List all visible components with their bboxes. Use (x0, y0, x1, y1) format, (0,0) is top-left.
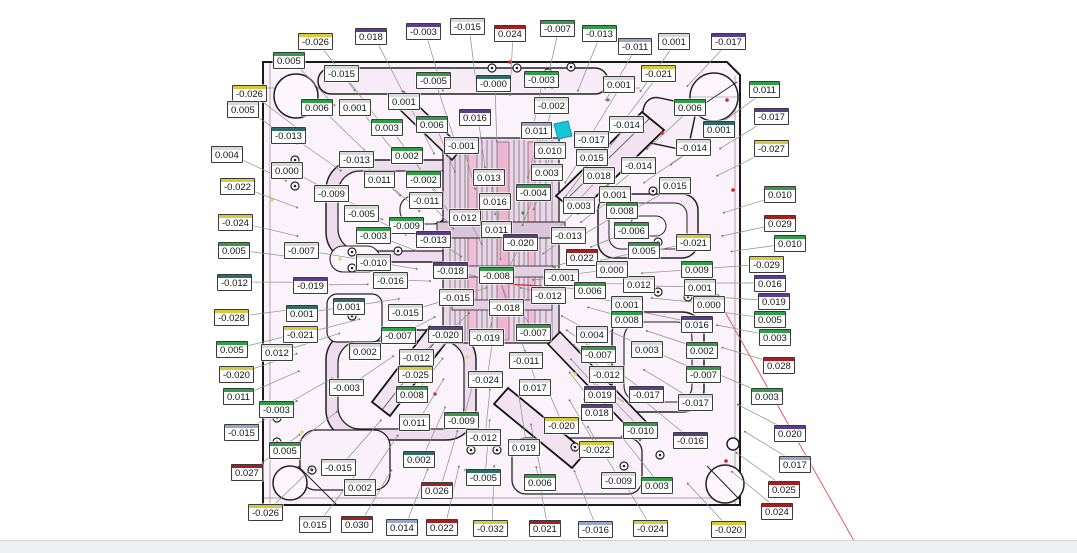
deviation-value: -0.012 (218, 278, 251, 290)
deviation-value: 0.001 (704, 125, 734, 137)
measurement-label[interactable]: -0.018 (489, 299, 524, 316)
deviation-value: -0.013 (272, 131, 305, 143)
deviation-value: 0.004 (212, 150, 242, 162)
deviation-value: 0.012 (450, 213, 480, 225)
measurement-label[interactable]: -0.020 (428, 326, 463, 343)
deviation-value: 0.011 (750, 85, 779, 97)
measurement-label[interactable]: 0.001 (286, 305, 318, 322)
measurement-label[interactable]: 0.001 (684, 279, 716, 296)
measurement-label[interactable]: -0.011 (509, 352, 543, 369)
deviation-value: -0.010 (357, 258, 390, 270)
measurement-label[interactable]: -0.016 (578, 521, 613, 538)
measurement-label[interactable]: 0.025 (768, 481, 800, 498)
measurement-label[interactable]: 0.009 (681, 261, 713, 278)
measurement-label[interactable]: -0.010 (623, 422, 658, 439)
measurement-label[interactable]: 0.024 (761, 503, 793, 520)
deviation-value: -0.013 (340, 155, 373, 167)
measurement-label[interactable]: -0.017 (754, 108, 789, 125)
measurement-label[interactable]: -0.015 (321, 459, 356, 476)
deviation-value: 0.005 (274, 56, 304, 68)
measurement-label[interactable]: -0.015 (224, 424, 259, 441)
deviation-value: -0.029 (750, 260, 783, 272)
deviation-value: -0.026 (249, 508, 282, 520)
deviation-value: -0.012 (400, 353, 433, 365)
measurement-label[interactable]: -0.007 (284, 242, 319, 259)
deviation-value: -0.016 (374, 276, 407, 288)
measurement-label[interactable]: 0.001 (603, 76, 635, 93)
deviation-value: 0.026 (422, 486, 452, 498)
deviation-value: -0.020 (712, 525, 745, 537)
measurement-label[interactable]: -0.004 (516, 184, 551, 201)
measurement-label[interactable]: 0.001 (339, 99, 371, 116)
measurement-label[interactable]: -0.016 (673, 432, 708, 449)
deviation-value: -0.017 (630, 390, 663, 402)
deviation-value: 0.018 (584, 171, 614, 183)
measurement-label[interactable]: -0.009 (444, 412, 479, 429)
measurement-label[interactable]: 0.008 (396, 386, 428, 403)
measurement-label[interactable]: -0.015 (439, 289, 474, 306)
measurement-label[interactable]: -0.007 (686, 366, 721, 383)
deviation-value: 0.000 (694, 300, 724, 312)
measurement-label[interactable]: -0.021 (641, 65, 676, 82)
measurement-label[interactable]: -0.012 (399, 349, 434, 366)
deviation-value: -0.015 (325, 69, 358, 81)
measurement-label[interactable]: -0.025 (398, 366, 433, 383)
deviation-value: 0.003 (752, 392, 782, 404)
deviation-value: 0.006 (575, 286, 605, 298)
deviation-value: -0.019 (294, 281, 327, 293)
deviation-value: 0.019 (585, 390, 615, 402)
deviation-value: -0.005 (345, 209, 378, 221)
deviation-value: -0.000 (477, 79, 510, 91)
deviation-value: -0.009 (445, 416, 478, 428)
deviation-value: 0.017 (520, 383, 550, 395)
deviation-value: 0.001 (600, 190, 630, 202)
measurement-label[interactable]: -0.003 (524, 71, 559, 88)
deviation-value: -0.015 (225, 428, 258, 440)
deviation-value: -0.021 (677, 238, 710, 250)
measurement-label[interactable]: 0.012 (261, 344, 293, 361)
measurement-label[interactable]: 0.016 (681, 316, 713, 333)
measurement-label[interactable]: -0.024 (218, 214, 253, 231)
measurement-label[interactable]: 0.030 (341, 516, 373, 533)
deviation-value: -0.014 (622, 161, 655, 173)
measurement-label[interactable]: -0.014 (676, 139, 711, 156)
deviation-value: -0.007 (517, 328, 550, 340)
measurement-label[interactable]: -0.009 (601, 472, 636, 489)
deviation-value: 0.006 (417, 120, 447, 132)
measurement-label[interactable]: -0.013 (339, 151, 374, 168)
measurement-label[interactable]: 0.005 (628, 242, 660, 259)
deviation-value: 0.001 (334, 302, 364, 314)
deviation-value: 0.020 (775, 429, 805, 441)
deviation-value: 0.029 (765, 219, 795, 231)
deviation-value: 0.003 (564, 201, 594, 213)
measurement-label[interactable]: 0.020 (774, 425, 806, 442)
measurement-label[interactable]: -0.007 (516, 324, 551, 341)
measurement-label[interactable]: -0.028 (214, 309, 249, 326)
measurement-label[interactable]: -0.026 (298, 33, 333, 50)
measurement-label[interactable]: 0.004 (576, 326, 608, 343)
measurement-label[interactable]: 0.012 (623, 276, 655, 293)
measurement-label[interactable]: -0.003 (406, 23, 441, 40)
measurement-label[interactable]: -0.013 (416, 231, 451, 248)
deviation-value: 0.008 (612, 315, 642, 327)
measurement-label[interactable]: -0.002 (534, 97, 569, 114)
measurement-label[interactable]: -0.013 (551, 227, 586, 244)
deviation-value: -0.003 (525, 75, 558, 87)
measurement-label[interactable]: 0.016 (754, 275, 786, 292)
deviation-value: 0.012 (262, 348, 292, 360)
measurement-label[interactable]: -0.015 (388, 304, 423, 321)
deviation-value: 0.001 (340, 103, 370, 115)
deviation-value: 0.003 (372, 123, 402, 135)
measurement-label[interactable]: -0.014 (609, 116, 644, 133)
deviation-value: -0.013 (417, 235, 450, 247)
deviation-value: 0.003 (532, 168, 562, 180)
measurement-label[interactable]: 0.001 (388, 93, 420, 110)
deviation-value: 0.009 (682, 265, 712, 277)
measurement-label[interactable]: 0.003 (751, 388, 783, 405)
measurement-label[interactable]: -0.003 (356, 227, 391, 244)
deviation-value: -0.020 (429, 330, 462, 342)
measurement-label[interactable]: -0.011 (409, 192, 443, 209)
deviation-value: 0.015 (300, 520, 330, 532)
measurement-label[interactable]: -0.007 (381, 327, 416, 344)
deviation-value: 0.005 (217, 345, 247, 357)
deviation-value: -0.017 (755, 112, 788, 124)
measurement-label[interactable]: 0.008 (606, 202, 638, 219)
measurement-label[interactable]: 0.006 (574, 282, 606, 299)
deviation-value: 0.012 (624, 280, 654, 292)
measurement-label[interactable]: 0.000 (693, 296, 725, 313)
deviation-value: 0.019 (759, 297, 789, 309)
deviation-value: -0.009 (602, 476, 635, 488)
deviation-value: -0.015 (389, 308, 422, 320)
measurement-label[interactable]: 0.029 (764, 215, 796, 232)
measurement-label[interactable]: 0.005 (754, 311, 786, 328)
deviation-value: 0.002 (345, 483, 375, 495)
deviation-value: 0.024 (762, 507, 792, 519)
measurement-label[interactable]: 0.028 (763, 357, 795, 374)
measurement-label[interactable]: -0.018 (433, 262, 468, 279)
deviation-value: -0.017 (679, 398, 712, 410)
deviation-value: 0.025 (769, 485, 799, 497)
measurement-label[interactable]: 0.006 (416, 116, 448, 133)
deviation-value: 0.024 (495, 29, 525, 41)
measurement-label[interactable]: -0.002 (406, 171, 441, 188)
measurement-label[interactable]: -0.024 (468, 371, 503, 388)
deviation-value: 0.015 (577, 153, 607, 165)
deviation-value: -0.014 (677, 143, 710, 155)
deviation-value: -0.006 (615, 226, 648, 238)
measurement-label[interactable]: 0.010 (534, 142, 566, 159)
measurement-label[interactable]: 0.021 (529, 520, 561, 537)
measurement-label[interactable]: 0.022 (566, 249, 598, 266)
measurement-label[interactable]: -0.003 (329, 379, 364, 396)
measurement-label[interactable]: 0.019 (758, 293, 790, 310)
measurement-label[interactable]: -0.012 (217, 274, 252, 291)
measurement-label[interactable]: -0.005 (416, 72, 451, 89)
deviation-value: 0.001 (604, 80, 634, 92)
deviation-value: -0.020 (545, 421, 578, 433)
measurement-label[interactable]: 0.013 (473, 169, 505, 186)
deviation-value: 0.011 (224, 392, 253, 404)
measurement-label[interactable]: -0.026 (248, 504, 283, 521)
deviation-value: 0.027 (232, 468, 262, 480)
measurement-label[interactable]: -0.000 (476, 75, 511, 92)
measurement-label[interactable]: -0.017 (629, 386, 664, 403)
deviation-value: -0.012 (590, 370, 623, 382)
measurement-label[interactable]: 0.024 (494, 25, 526, 42)
measurement-label[interactable]: 0.003 (563, 197, 595, 214)
deviation-value: -0.022 (580, 445, 613, 457)
measurement-label[interactable]: 0.018 (355, 28, 387, 45)
deviation-value: 0.002 (687, 346, 717, 358)
measurement-label[interactable]: -0.015 (450, 18, 485, 35)
measurement-label[interactable]: -0.032 (473, 520, 508, 537)
measurement-label[interactable]: 0.006 (524, 474, 556, 491)
measurement-label[interactable]: -0.014 (621, 157, 656, 174)
measurement-label[interactable]: -0.013 (582, 25, 617, 42)
deviation-value: 0.016 (682, 320, 712, 332)
cad-viewport[interactable]: -0.0260.018-0.003-0.0150.024-0.007-0.013… (0, 0, 1077, 553)
measurement-label[interactable]: -0.029 (749, 256, 784, 273)
measurement-label[interactable]: 0.017 (779, 456, 811, 473)
deviation-value: -0.011 (510, 356, 542, 368)
deviation-value: -0.021 (642, 69, 675, 81)
measurement-label[interactable]: -0.022 (220, 178, 255, 195)
deviation-value: -0.003 (407, 27, 440, 39)
deviation-value: 0.001 (659, 37, 689, 49)
measurement-label[interactable]: -0.020 (711, 521, 746, 538)
deviation-value: 0.002 (392, 151, 422, 163)
deviation-value: 0.028 (764, 361, 794, 373)
deviation-value: -0.007 (687, 370, 720, 382)
deviation-value: -0.020 (504, 238, 537, 250)
deviation-value: -0.011 (410, 196, 442, 208)
measurement-label[interactable]: 0.005 (269, 442, 301, 459)
deviation-value: -0.007 (382, 331, 415, 343)
deviation-value: -0.001 (545, 273, 578, 285)
measurement-label[interactable]: -0.006 (614, 222, 649, 239)
deviation-value: 0.006 (675, 103, 705, 115)
measurement-label[interactable]: 0.015 (576, 149, 608, 166)
measurement-label[interactable]: -0.005 (466, 469, 501, 486)
deviation-value: -0.014 (610, 120, 643, 132)
measurement-label[interactable]: -0.026 (232, 85, 267, 102)
measurement-label[interactable]: 0.019 (584, 386, 616, 403)
measurement-label[interactable]: -0.013 (271, 127, 306, 144)
deviation-value: -0.024 (219, 218, 252, 230)
measurement-label[interactable]: 0.006 (301, 99, 333, 116)
measurement-label[interactable]: 0.001 (599, 186, 631, 203)
measurement-label[interactable]: 0.003 (759, 329, 791, 346)
deviation-value: -0.002 (535, 101, 568, 113)
deviation-value: -0.007 (285, 246, 318, 258)
measurement-label[interactable]: 0.017 (519, 379, 551, 396)
deviation-value: 0.002 (404, 455, 434, 467)
deviation-value: 0.006 (302, 103, 332, 115)
deviation-value: 0.022 (427, 523, 457, 535)
measurement-label[interactable]: -0.005 (344, 205, 379, 222)
deviation-value: -0.001 (445, 141, 478, 153)
deviation-value: -0.005 (467, 473, 500, 485)
measurement-label[interactable]: -0.012 (466, 429, 501, 446)
measurement-label[interactable]: 0.002 (391, 147, 423, 164)
measurement-label[interactable]: 0.002 (349, 343, 381, 360)
measurement-label[interactable]: -0.001 (444, 137, 479, 154)
deviation-value: -0.007 (541, 24, 574, 36)
measurement-label[interactable]: -0.027 (754, 140, 789, 157)
measurement-label[interactable]: 0.012 (449, 209, 481, 226)
measurement-label[interactable]: 0.006 (674, 99, 706, 116)
measurement-label[interactable]: -0.017 (574, 131, 609, 148)
deviation-value: 0.013 (474, 173, 504, 185)
measurement-label[interactable]: 0.016 (459, 109, 491, 126)
measurement-label[interactable]: 0.002 (686, 342, 718, 359)
measurement-label[interactable]: 0.000 (596, 261, 628, 278)
deviation-value: -0.032 (474, 524, 507, 536)
measurement-label[interactable]: 0.000 (271, 162, 303, 179)
measurement-label[interactable]: -0.003 (259, 401, 294, 418)
deviation-value: -0.016 (579, 525, 612, 537)
measurement-label[interactable]: 0.018 (583, 167, 615, 184)
deviation-value: -0.013 (583, 29, 616, 41)
measurement-label[interactable]: 0.005 (216, 341, 248, 358)
measurement-label[interactable]: 0.022 (426, 519, 458, 536)
deviation-value: 0.005 (228, 105, 258, 117)
deviation-value: -0.018 (490, 303, 523, 315)
deviation-value: -0.024 (469, 375, 502, 387)
deviation-value: -0.008 (480, 271, 513, 283)
deviation-value: 0.003 (632, 345, 662, 357)
deviation-value: -0.018 (434, 266, 467, 278)
measurement-label[interactable]: 0.026 (421, 482, 453, 499)
deviation-value: 0.006 (525, 478, 555, 490)
deviation-value: -0.017 (712, 37, 745, 49)
measurement-label[interactable]: 0.011 (364, 171, 395, 188)
measurement-label[interactable]: -0.020 (503, 234, 538, 251)
measurement-label[interactable]: -0.021 (283, 326, 318, 343)
measurement-label[interactable]: 0.015 (659, 177, 691, 194)
measurement-label[interactable]: 0.010 (774, 235, 806, 252)
deviation-value: -0.026 (233, 89, 266, 101)
deviation-value: 0.017 (780, 460, 810, 472)
deviation-value: 0.021 (530, 524, 560, 536)
measurement-label[interactable]: 0.014 (386, 519, 418, 536)
measurement-label[interactable]: -0.007 (540, 20, 575, 37)
deviation-value: -0.026 (299, 37, 332, 49)
measurement-label[interactable]: -0.008 (479, 267, 514, 284)
deviation-value: 0.000 (597, 265, 627, 277)
measurement-label[interactable]: 0.011 (223, 388, 254, 405)
deviation-value: 0.005 (270, 446, 300, 458)
deviation-value: 0.003 (642, 481, 672, 493)
measurement-label[interactable]: -0.011 (618, 38, 652, 55)
measurement-label[interactable]: -0.020 (544, 417, 579, 434)
measurement-label[interactable]: 0.002 (403, 451, 435, 468)
deviation-value: 0.010 (535, 146, 565, 158)
deviation-value: -0.005 (417, 76, 450, 88)
measurement-label[interactable]: 0.010 (764, 186, 796, 203)
deviation-value: 0.005 (755, 315, 785, 327)
deviation-value: 0.003 (760, 333, 790, 345)
measurement-label[interactable]: 0.011 (399, 414, 430, 431)
deviation-value: 0.011 (522, 126, 551, 138)
measurement-label[interactable]: -0.022 (579, 441, 614, 458)
deviation-value: -0.012 (532, 291, 565, 303)
deviation-value: 0.005 (219, 246, 249, 258)
deviation-value: -0.020 (220, 370, 253, 382)
deviation-value: 0.001 (287, 309, 317, 321)
deviation-value: 0.010 (775, 239, 805, 251)
measurement-label[interactable]: 0.011 (749, 81, 780, 98)
measurement-label[interactable]: 0.005 (273, 52, 305, 69)
measurement-label[interactable]: -0.016 (373, 272, 408, 289)
measurement-label[interactable]: 0.003 (371, 119, 403, 136)
deviation-value: -0.021 (284, 330, 317, 342)
measurement-label[interactable]: 0.002 (344, 479, 376, 496)
measurement-label[interactable]: -0.009 (314, 185, 349, 202)
deviation-value: -0.007 (582, 350, 615, 362)
deviation-value: 0.010 (765, 190, 795, 202)
deviation-value: 0.011 (400, 418, 429, 430)
measurement-label[interactable]: -0.010 (356, 254, 391, 271)
measurement-label[interactable]: -0.007 (581, 346, 616, 363)
measurement-label[interactable]: -0.024 (633, 520, 668, 537)
deviation-value: -0.022 (221, 182, 254, 194)
deviation-value: 0.030 (342, 520, 372, 532)
measurement-label[interactable]: 0.005 (227, 101, 259, 118)
measurement-label[interactable]: 0.015 (299, 516, 331, 533)
measurement-label[interactable]: 0.003 (531, 164, 563, 181)
deviation-value: -0.003 (357, 231, 390, 243)
measurement-label[interactable]: 0.018 (581, 404, 613, 421)
measurement-label[interactable]: 0.001 (703, 121, 735, 138)
deviation-value: 0.008 (397, 390, 427, 402)
measurement-label[interactable]: 0.003 (631, 341, 663, 358)
measurement-label[interactable]: 0.019 (508, 439, 540, 456)
measurement-label[interactable]: -0.019 (293, 277, 328, 294)
deviation-value: -0.013 (552, 231, 585, 243)
measurement-label[interactable]: 0.027 (231, 464, 263, 481)
deviation-value: -0.025 (399, 370, 432, 382)
deviation-value: -0.019 (470, 333, 503, 345)
measurement-label[interactable]: -0.015 (324, 65, 359, 82)
deviation-value: 0.011 (365, 175, 394, 187)
measurement-label[interactable]: 0.008 (611, 311, 643, 328)
measurement-label[interactable]: 0.003 (641, 477, 673, 494)
deviation-value: -0.004 (517, 188, 550, 200)
deviation-value: 0.000 (272, 166, 302, 178)
measurement-label[interactable]: -0.021 (676, 234, 711, 251)
measurement-label[interactable]: -0.017 (678, 394, 713, 411)
measurement-label[interactable]: 0.011 (521, 122, 552, 139)
measurement-label[interactable]: 0.004 (211, 146, 243, 163)
deviation-value: -0.012 (467, 433, 500, 445)
measurement-label[interactable]: -0.012 (589, 366, 624, 383)
measurement-label[interactable]: -0.012 (531, 287, 566, 304)
measurement-label[interactable]: 0.001 (658, 33, 690, 50)
deviation-value: -0.028 (215, 313, 248, 325)
measurement-label[interactable]: -0.019 (469, 329, 504, 346)
measurement-label[interactable]: -0.020 (219, 366, 254, 383)
measurement-label[interactable]: -0.017 (711, 33, 746, 50)
measurement-label[interactable]: 0.005 (218, 242, 250, 259)
measurement-label[interactable]: 0.016 (479, 193, 511, 210)
measurement-label[interactable]: 0.001 (333, 298, 365, 315)
